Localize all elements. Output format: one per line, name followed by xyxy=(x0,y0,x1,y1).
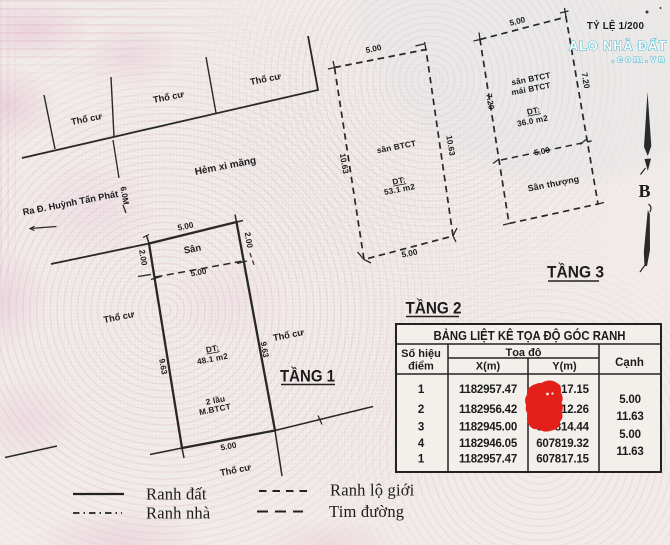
svg-text:Thổ cư: Thổ cư xyxy=(70,111,103,127)
svg-text:48.1 m2: 48.1 m2 xyxy=(196,352,229,367)
svg-text:TẦNG 1: TẦNG 1 xyxy=(280,367,335,386)
svg-text:7.20: 7.20 xyxy=(484,93,496,111)
svg-text:Thổ cư: Thổ cư xyxy=(103,309,136,325)
svg-text:6.0M: 6.0M xyxy=(118,186,130,206)
svg-text:1: 1 xyxy=(418,384,425,396)
svg-text:5.00: 5.00 xyxy=(401,247,419,259)
svg-text:Sân: Sân xyxy=(183,242,202,256)
svg-text:Y(m): Y(m) xyxy=(552,361,577,373)
svg-text:5.00: 5.00 xyxy=(190,267,208,279)
svg-text:5.00: 5.00 xyxy=(619,429,641,441)
svg-text:36.0 m2: 36.0 m2 xyxy=(516,114,549,129)
svg-text:10.63: 10.63 xyxy=(444,135,456,157)
svg-text:Ranh lộ giới: Ranh lộ giới xyxy=(330,481,415,500)
svg-text:5.00: 5.00 xyxy=(619,394,641,406)
svg-text:1182957.47: 1182957.47 xyxy=(459,384,517,396)
svg-text:Sân thượng: Sân thượng xyxy=(527,174,580,194)
svg-text:M.BTCT: M.BTCT xyxy=(198,402,231,417)
svg-text:Thổ cư: Thổ cư xyxy=(219,462,252,478)
svg-text:Cạnh: Cạnh xyxy=(615,357,644,369)
svg-text:X(m): X(m) xyxy=(476,361,501,373)
svg-text:Tim đường: Tim đường xyxy=(329,502,404,521)
svg-text:5.00: 5.00 xyxy=(533,145,551,157)
svg-text:điểm: điểm xyxy=(408,361,434,373)
svg-text:ALO NHÀ ĐẤT: ALO NHÀ ĐẤT xyxy=(569,38,666,53)
svg-text:7.20: 7.20 xyxy=(580,72,592,90)
svg-text:B: B xyxy=(638,181,650,201)
svg-text:2.00: 2.00 xyxy=(243,231,255,249)
svg-text:1182946.05: 1182946.05 xyxy=(459,438,518,450)
svg-text:607817.15: 607817.15 xyxy=(536,454,589,466)
svg-text:1: 1 xyxy=(418,454,425,466)
svg-text:BẢNG LIỆT KÊ TỌA ĐỘ GÓC RANH: BẢNG LIỆT KÊ TỌA ĐỘ GÓC RANH xyxy=(434,328,626,343)
svg-text:11.63: 11.63 xyxy=(616,411,643,423)
svg-text:9.63: 9.63 xyxy=(157,358,169,376)
svg-text:.com.vn: .com.vn xyxy=(612,55,665,66)
svg-text:1182956.42: 1182956.42 xyxy=(459,404,517,416)
svg-text:5.00: 5.00 xyxy=(365,43,383,55)
svg-text:2.00: 2.00 xyxy=(137,249,149,267)
svg-text:TỶ LỆ 1/200: TỶ LỆ 1/200 xyxy=(587,20,645,32)
svg-text:Số hiệu: Số hiệu xyxy=(401,348,441,360)
svg-text:607819.32: 607819.32 xyxy=(536,438,589,450)
svg-text:4: 4 xyxy=(418,438,425,450)
svg-text:Thổ cư: Thổ cư xyxy=(152,89,185,105)
svg-text:TẦNG 2: TẦNG 2 xyxy=(406,299,462,318)
svg-text:Ranh đất: Ranh đất xyxy=(146,485,207,504)
svg-text:Thổ cư: Thổ cư xyxy=(272,327,305,343)
svg-text:TẦNG 3: TẦNG 3 xyxy=(547,263,604,282)
svg-text:5.00: 5.00 xyxy=(177,220,195,232)
svg-text:Thổ cư: Thổ cư xyxy=(249,71,282,87)
svg-text:53.1 m2: 53.1 m2 xyxy=(383,182,416,197)
svg-text:Ranh nhà: Ranh nhà xyxy=(146,504,211,523)
svg-text:11.63: 11.63 xyxy=(616,446,643,458)
svg-text:sân BTCT: sân BTCT xyxy=(376,139,417,155)
svg-text:5.00: 5.00 xyxy=(220,441,238,453)
svg-text:1182957.47: 1182957.47 xyxy=(459,454,517,466)
svg-text:Ra Đ. Huỳnh Tấn Phát: Ra Đ. Huỳnh Tấn Phát xyxy=(22,189,119,217)
svg-text:2: 2 xyxy=(418,404,424,416)
svg-text:1182945.00: 1182945.00 xyxy=(459,422,517,434)
svg-text:5.00: 5.00 xyxy=(509,15,527,28)
svg-text:Hẻm xi măng: Hẻm xi măng xyxy=(194,155,257,178)
svg-text:Tọa độ: Tọa độ xyxy=(505,347,541,359)
svg-text:3: 3 xyxy=(418,422,424,434)
